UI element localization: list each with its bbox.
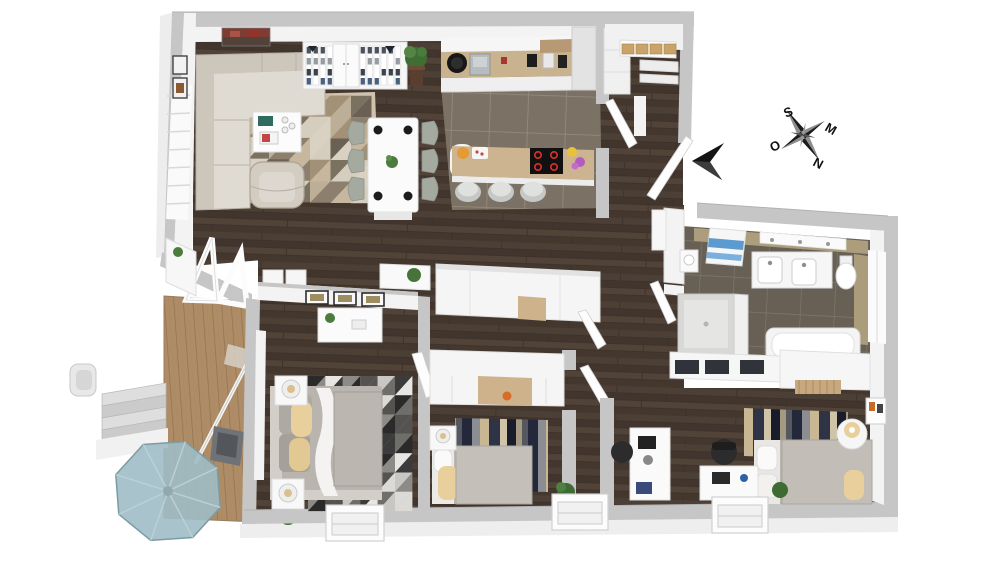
svg-text:O: O: [768, 137, 783, 155]
svg-text:N: N: [811, 154, 826, 172]
svg-text:M: M: [823, 120, 840, 138]
